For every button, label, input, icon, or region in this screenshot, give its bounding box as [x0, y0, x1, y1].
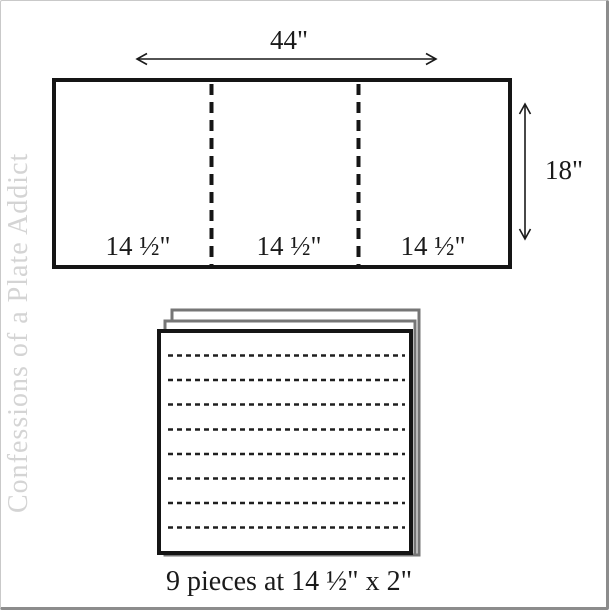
fabric-height-label: 18" [545, 156, 583, 186]
pieces-caption: 9 pieces at 14 ½" x 2" [166, 567, 412, 598]
fabric-width-label: 44" [270, 26, 308, 56]
sheet-front [159, 331, 411, 553]
framed-diagram-image: Confessions of a Plate Addict [0, 0, 609, 610]
section-label-2: 14 ½" [256, 232, 321, 262]
section-label-1: 14 ½" [105, 232, 170, 262]
section-label-3: 14 ½" [400, 232, 465, 262]
cutting-diagram-canvas [1, 1, 609, 610]
height-dimension-arrow [520, 104, 531, 239]
